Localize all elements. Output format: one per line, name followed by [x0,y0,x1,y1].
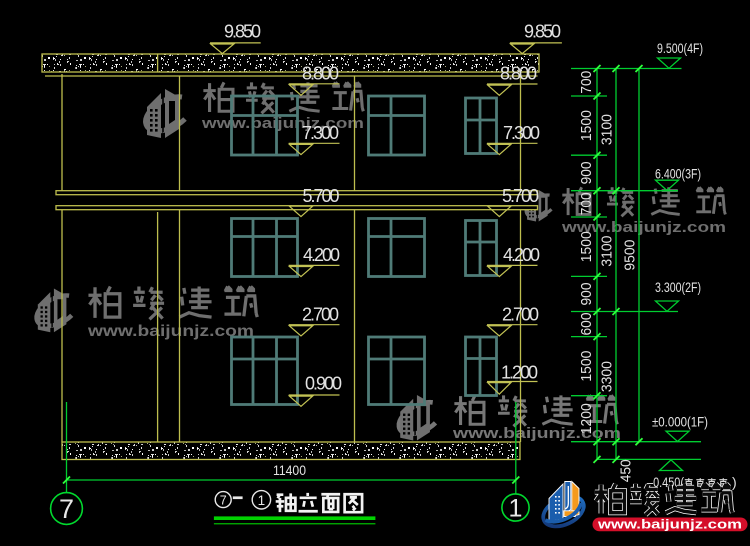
svg-text:www.baijunjz.com: www.baijunjz.com [201,115,364,132]
svg-text:7: 7 [59,494,74,524]
svg-text:6.400(3F): 6.400(3F) [655,166,701,182]
svg-text:1: 1 [258,493,266,508]
svg-text:): ) [732,474,737,490]
svg-text:450: 450 [619,459,635,482]
svg-text:9500: 9500 [623,240,639,271]
svg-text:700: 700 [579,192,595,215]
svg-text:www.baijunjz.com: www.baijunjz.com [597,518,742,532]
svg-text:www.baijunjz.com: www.baijunjz.com [87,323,254,340]
svg-text:600: 600 [579,313,595,336]
svg-text:9.850: 9.850 [224,22,261,42]
svg-text:1500: 1500 [579,231,595,262]
svg-text:900: 900 [579,283,595,306]
svg-text:900: 900 [579,161,595,184]
svg-text:3300: 3300 [600,361,616,392]
svg-text:8.800: 8.800 [302,64,339,84]
svg-text:www.baijunjz.com: www.baijunjz.com [452,425,621,442]
svg-text:1500: 1500 [579,351,595,382]
svg-text:9.500(4F): 9.500(4F) [657,40,703,56]
svg-text:3100: 3100 [600,236,616,267]
svg-text:3.300(2F): 3.300(2F) [655,279,701,295]
svg-text:1: 1 [509,495,523,523]
svg-text:1500: 1500 [579,110,595,141]
svg-text:5.700: 5.700 [303,186,340,206]
svg-text:4.200: 4.200 [303,245,340,265]
svg-text:2.700: 2.700 [302,305,339,325]
svg-text:8.800: 8.800 [500,64,537,84]
svg-text:9.850: 9.850 [524,22,561,42]
svg-text:2.700: 2.700 [502,305,539,325]
svg-text:11400: 11400 [273,463,306,478]
svg-text:7.300: 7.300 [503,123,540,143]
svg-text:700: 700 [579,71,595,94]
svg-text:5.700: 5.700 [502,186,539,206]
svg-text:7.300: 7.300 [302,123,339,143]
svg-text:±0.000(1F): ±0.000(1F) [652,414,708,430]
svg-text:0.900: 0.900 [305,374,342,394]
svg-text:4.200: 4.200 [503,245,540,265]
svg-text:1.200: 1.200 [501,363,538,383]
svg-text:1200: 1200 [579,403,595,434]
svg-text:3100: 3100 [600,114,616,145]
svg-text:7: 7 [220,493,227,507]
